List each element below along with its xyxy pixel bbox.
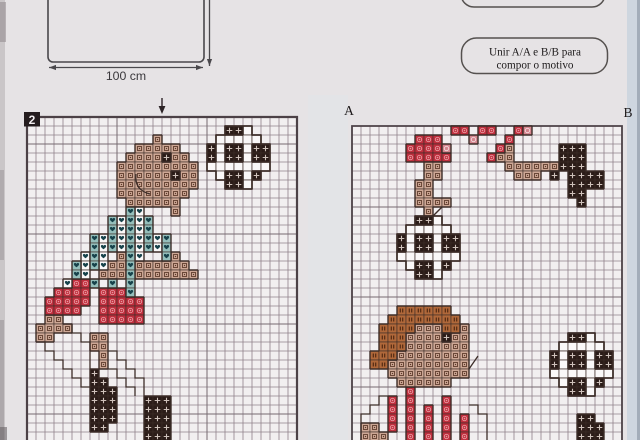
svg-text:B: B [623, 105, 632, 120]
svg-text:A: A [344, 103, 354, 118]
svg-text:100 cm: 100 cm [106, 69, 146, 83]
svg-text:2: 2 [29, 113, 36, 127]
svg-text:compor o motivo: compor o motivo [496, 60, 573, 72]
svg-text:Unir A/A e B/B para: Unir A/A e B/B para [489, 47, 581, 59]
